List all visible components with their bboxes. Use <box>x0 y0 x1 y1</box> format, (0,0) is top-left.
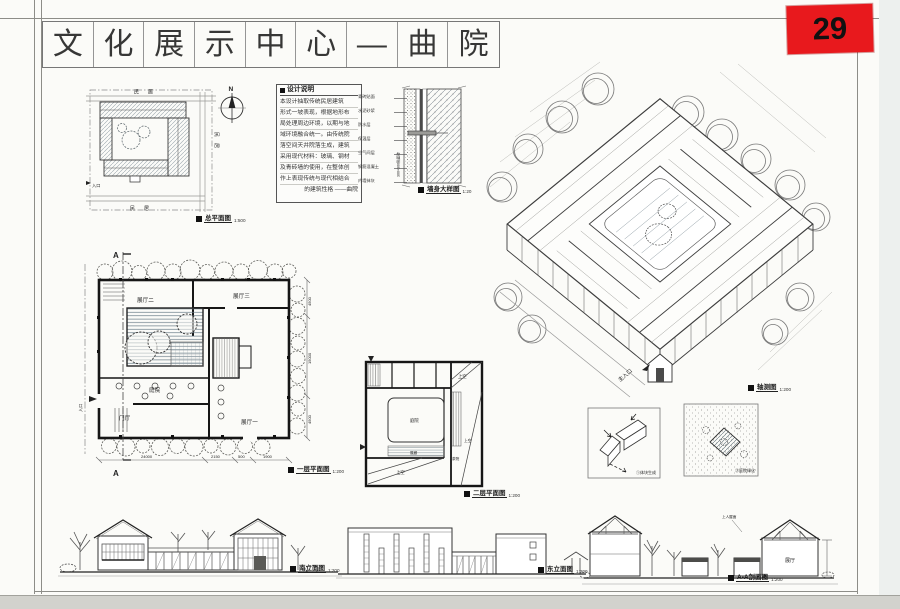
floor-plan-1-caption: 一层平面图 1:200 <box>288 466 344 474</box>
south-elevation-caption: 南立面图 1:200 <box>290 565 340 573</box>
massing-caption: ①体块生成 <box>636 469 656 475</box>
title-char: 文 <box>43 22 94 67</box>
svg-text:2150: 2150 <box>211 454 221 459</box>
section-hall-label: 展厅 <box>785 558 795 564</box>
section-caption: A-A剖面图 1:200 <box>728 574 783 582</box>
caption-square-icon <box>288 467 294 473</box>
design-notes-box: 设计说明 本设计抽取传统民居建筑 形式一坡表现，根据地形布 局处理周边环境，以期… <box>276 84 362 203</box>
site-neighbor-right-label: 民居 <box>213 132 219 154</box>
section-roof-note: 上人屋面 <box>722 514 737 519</box>
wall-layer-label: 青砖贴面 <box>358 92 394 106</box>
title-char: 心 <box>296 22 347 67</box>
axon-roof-plan <box>507 99 812 349</box>
plan1-stair-topleft <box>103 284 127 432</box>
caption-square-icon <box>748 385 754 391</box>
section-buildings <box>588 516 820 576</box>
caption-square-icon <box>538 567 544 573</box>
caption-square-icon <box>464 491 470 497</box>
room-label-hall1: 展厅一 <box>241 419 258 426</box>
east-elevation-caption: 东立面图 1:200 <box>538 566 588 574</box>
notes-line: 采用现代材料：玻璃、钢材 <box>280 152 358 163</box>
room-label-void1: 上空 <box>458 373 467 379</box>
wall-detail-caption: 墙身大样图 1:20 <box>418 186 471 194</box>
notes-line: 形式一坡表现，根据地形布 <box>280 108 358 119</box>
second-floor-plan: 庭院 展廊 茶院 上空 上空 上空 <box>356 350 494 498</box>
wall-layer-label: 保温层 <box>358 134 394 148</box>
caption-square-icon <box>418 187 424 193</box>
wall-layer-label: 钢筋混凝土 <box>358 162 394 176</box>
greening-caption: ②庭院绿化 <box>735 467 755 473</box>
site-plan-drawing: 民居 民居 民居 入口 N <box>84 84 252 220</box>
wall-side-note: 300×300贴面砖 <box>396 152 401 177</box>
elev-e-buildings <box>348 528 546 574</box>
svg-text:500: 500 <box>238 454 245 459</box>
room-label-court2: 庭院 <box>410 417 419 424</box>
design-notes-title: 设计说明 <box>280 87 358 96</box>
room-label-gallery: 展廊 <box>410 450 418 455</box>
scan-bottom-strip <box>0 595 900 609</box>
svg-text:4500: 4500 <box>307 414 312 424</box>
notes-line: 域环境融合统一。由传统院 <box>280 130 358 141</box>
plan1-paving <box>171 342 203 366</box>
room-label-tea: 茶院 <box>452 456 460 461</box>
floor-plan-2-caption: 二层平面图 1:200 <box>464 490 520 498</box>
plan2-ramp <box>452 392 461 446</box>
first-floor-plan: A A 入口 展厅二 展厅三 庭院 门厅 展厅一 4500 15000 4500… <box>75 246 347 496</box>
room-label-lobby: 门厅 <box>119 414 131 422</box>
site-plan-caption: 总平面图 1:500 <box>196 215 246 223</box>
title-char: 展 <box>144 22 195 67</box>
notes-line: 作上表现传统与现代相结合 <box>280 174 358 185</box>
plan2-stair <box>368 364 380 386</box>
plan1-stair-core <box>213 338 239 378</box>
frame-bottom-line <box>34 591 858 592</box>
north-compass: N <box>218 86 246 123</box>
bullet-square-icon <box>280 88 285 93</box>
plan1-furniture <box>116 383 224 419</box>
svg-text:1900: 1900 <box>263 454 273 459</box>
room-label-hall3: 展厅三 <box>233 293 250 300</box>
frame-top-line <box>0 18 900 19</box>
elev-s-buildings <box>94 519 286 570</box>
wall-layer-label: 水泥砂浆 <box>358 106 394 120</box>
room-label-void3: 上空 <box>396 469 405 475</box>
site-entry-porch <box>130 176 140 182</box>
frame-right-line <box>857 40 858 594</box>
sheet-title-grid: 文 化 展 示 中 心 — 曲 院 <box>42 21 500 68</box>
plan1-entry-gap <box>95 394 103 408</box>
section-mark-bottom: A <box>113 469 119 478</box>
frame-left-line-outer <box>34 0 35 594</box>
concept-diagram-massing: ①体块生成 <box>586 406 662 482</box>
caption-square-icon <box>290 566 296 572</box>
wall-layer-callouts: 青砖贴面 水泥砂浆 防水层 保温层 空气间层 钢筋混凝土 内墙抹灰 <box>358 92 394 190</box>
paper-right-edge <box>879 0 900 609</box>
notes-line: 落空间天井院落生成，建筑 <box>280 141 358 152</box>
site-building-wings <box>100 102 189 176</box>
plan1-dim-bottom: 24000 2150 500 1900 <box>96 454 292 463</box>
wall-layer-label: 空气间层 <box>358 148 394 162</box>
room-label-court: 庭院 <box>149 386 161 394</box>
wall-layer-label: 防水层 <box>358 120 394 134</box>
wall-layer-label: 内墙抹灰 <box>358 176 394 190</box>
page-number: 29 <box>812 11 847 48</box>
notes-line: 及青砖墙的使用，在整体创 <box>280 163 358 174</box>
frame-left-line-inner <box>41 0 42 594</box>
title-char: 示 <box>195 22 246 67</box>
room-label-hall2: 展厅二 <box>137 297 154 304</box>
section-a-a: 上人屋面 展厅 <box>582 506 838 590</box>
page-number-badge: 29 <box>786 4 873 54</box>
notes-line: 局处理周边环境，以期与地 <box>280 119 358 130</box>
section-mark-top: A <box>113 251 119 260</box>
plan1-entry-label: 入口 <box>78 404 83 412</box>
axon-entry-porch <box>648 354 672 382</box>
wall-tie-anchor <box>408 131 436 135</box>
massing-volumes <box>600 420 646 466</box>
concept-diagram-greening: ②庭院绿化 <box>682 402 760 480</box>
site-entry-label: 入口 <box>92 183 100 188</box>
caption-square-icon <box>728 575 734 581</box>
title-char: — <box>347 22 398 67</box>
title-char: 中 <box>246 22 297 67</box>
caption-square-icon <box>196 216 202 222</box>
north-label: N <box>229 86 234 93</box>
svg-text:24000: 24000 <box>141 454 153 459</box>
room-label-void2: 上空 <box>464 438 472 443</box>
wall-section-detail: 300×300贴面砖 <box>396 85 468 189</box>
axonometric-caption: 轴测图 1:200 <box>748 384 791 392</box>
axonometric-drawing: 主入口 <box>470 52 842 397</box>
svg-text:4500: 4500 <box>307 296 312 306</box>
svg-text:15000: 15000 <box>307 352 312 364</box>
title-char: 化 <box>94 22 145 67</box>
section-level-marks <box>822 540 832 576</box>
site-neighbor-top-label: 民居 <box>134 90 162 96</box>
notes-line: 的建筑性格 ——曲院 <box>280 185 358 196</box>
title-char: 曲 <box>398 22 449 67</box>
site-courtyard-trees <box>118 124 151 150</box>
scanned-drawing-sheet: { "page": {"number": "29"}, "title": {"c… <box>0 0 900 609</box>
site-neighbor-bottom-label: 民居 <box>130 206 158 212</box>
plan2-void-diagonals <box>368 362 482 486</box>
notes-line: 本设计抽取传统民居建筑 <box>280 97 358 108</box>
